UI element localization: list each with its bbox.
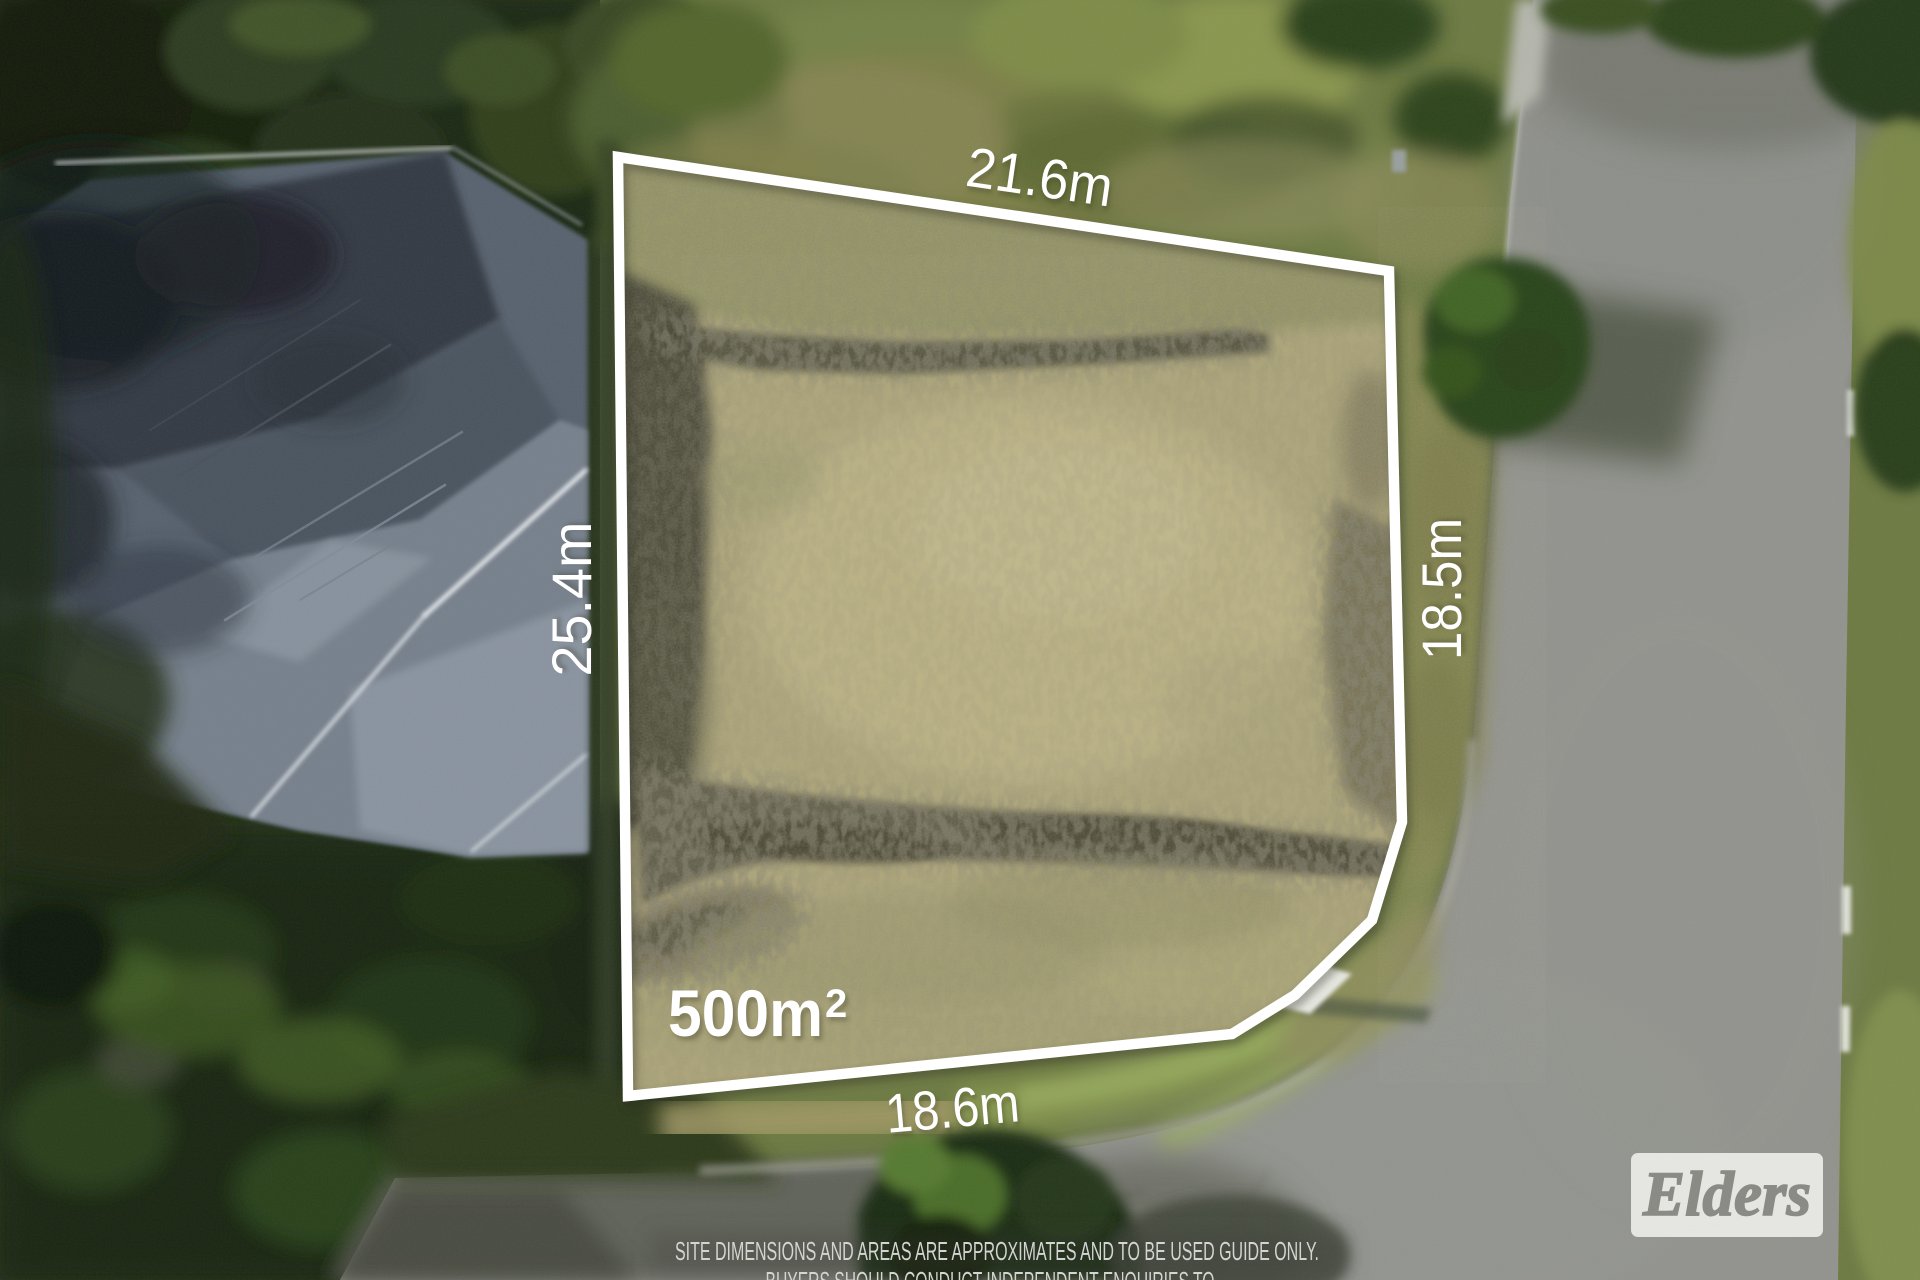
- svg-text:Elders: Elders: [1642, 1159, 1811, 1229]
- svg-text:500m: 500m: [668, 976, 823, 1050]
- svg-text:SITE DIMENSIONS AND AREAS ARE: SITE DIMENSIONS AND AREAS ARE APPROXIMAT…: [675, 1236, 1319, 1266]
- svg-text:18.5m: 18.5m: [1410, 518, 1473, 660]
- svg-text:BUYERS SHOULD CONDUCT INDEPEND: BUYERS SHOULD CONDUCT INDEPENDENT ENQUIR…: [766, 1266, 1215, 1280]
- svg-text:2: 2: [825, 982, 847, 1026]
- svg-text:25.4m: 25.4m: [540, 522, 603, 677]
- svg-text:18.6m: 18.6m: [883, 1071, 1022, 1144]
